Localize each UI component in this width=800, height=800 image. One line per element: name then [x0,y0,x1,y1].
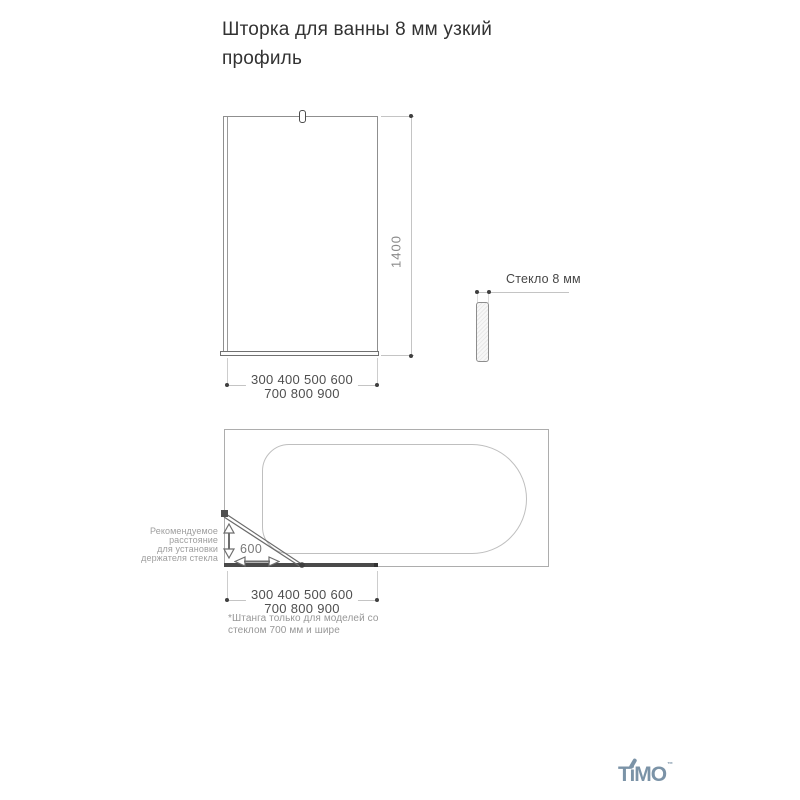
holder-distance-note: Рекомендуемое расстояние для установки д… [118,527,218,563]
rod-footnote-line2: стеклом 700 мм и шире [228,625,418,637]
height-dimension-label: 1400 [389,222,404,282]
height-dimension-line [411,116,412,356]
dimension-endpoint [225,383,229,387]
timo-logo: TiMO ™ [618,754,673,790]
dimension-endpoint [375,598,379,602]
rod-footnote-line1: *Штанга только для моделей со [228,613,418,625]
page-title: Шторка для ванны 8 мм узкий профиль [222,16,554,73]
width-options-label: 300 400 500 600 700 800 900 [246,588,358,615]
extension-line [377,571,378,600]
dimension-endpoint [225,598,229,602]
glass-panel-front [223,116,378,351]
dimension-endpoint [487,290,491,294]
product-diagram-page: Шторка для ванны 8 мм узкий профиль 1400… [0,0,800,800]
distance-label: 600 [240,542,262,556]
rod-footnote: *Штанга только для моделей со стеклом 70… [228,613,418,636]
dimension-endpoint [475,290,479,294]
holder-note-line: держателя стекла [118,554,218,563]
rod-glass-connector [299,562,305,568]
dimension-endpoint [409,354,413,358]
logo-wordmark: TiMO [618,760,666,790]
width-options-line2: 700 800 900 [251,387,353,401]
dimension-endpoint [409,114,413,118]
dimension-endpoint [375,383,379,387]
width-options-line1: 300 400 500 600 [251,373,353,387]
extension-line [488,293,489,303]
trademark-symbol: ™ [667,762,673,768]
glass-thickness-label: Стекло 8 мм [506,272,581,286]
width-options-label: 300 400 500 600 700 800 900 [246,373,358,400]
glass-panel-side [476,302,489,362]
wall-mount-clip [299,110,306,123]
glass-left-profile-line [227,117,228,351]
rod-wall-anchor [221,510,228,517]
width-options-line1: 300 400 500 600 [251,588,353,602]
distance-arrow-vertical [222,523,236,559]
glass-end-cap [374,563,378,567]
extension-line [227,571,228,600]
distance-arrow-horizontal [234,555,280,568]
logo-letters: TiMO [618,763,666,786]
bottom-profile-bar [220,351,379,356]
